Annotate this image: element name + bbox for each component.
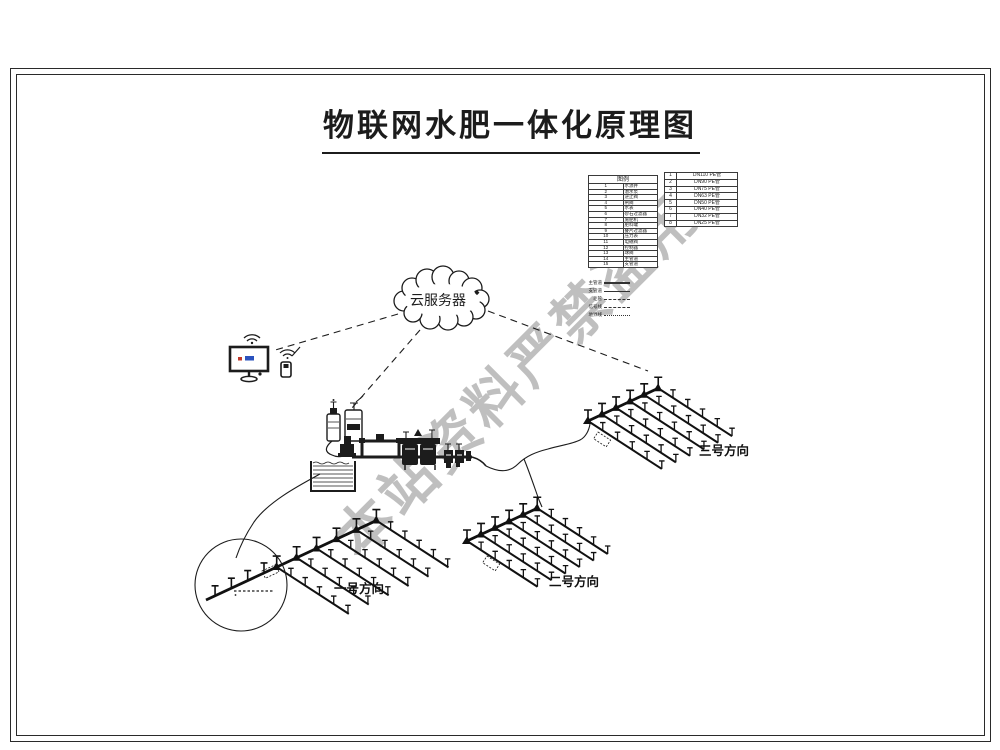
row-name: DN50 PE管 [677, 200, 738, 207]
field-label: 二号方向 [549, 574, 599, 589]
legend-header: 图例 [589, 176, 658, 184]
row-number: 7 [665, 213, 677, 220]
sand-filters [400, 429, 440, 470]
valve-meter-cluster [444, 444, 471, 468]
line-legend-item: 地界线 [586, 311, 630, 319]
page-title: 物联网水肥一体化原理图 [290, 100, 730, 145]
line-type-legend: 主管道支管道毛管信号线地界线 [586, 279, 630, 319]
valve-tag-box [483, 556, 500, 571]
screen-red-indicator [238, 357, 242, 361]
spec-row: 5DN50 PE管 [665, 200, 738, 207]
wifi-icon [280, 347, 300, 359]
pipeline-to-field-3 [486, 424, 590, 471]
line-sample [604, 307, 630, 308]
line-sample [604, 291, 630, 292]
link-cloud-to-pc [272, 314, 398, 351]
row-name: DN110 PE管 [677, 173, 738, 180]
pipeline-to-field-2 [524, 459, 542, 507]
field-2: 二号方向 [462, 497, 610, 589]
row-number: 8 [665, 220, 677, 227]
line-legend-label: 毛管 [586, 296, 602, 302]
spec-row: 6DN40 PE管 [665, 206, 738, 213]
row-number: 15 [589, 262, 624, 268]
screen-blue-indicator [245, 356, 254, 361]
monitor-dot [258, 372, 261, 375]
drawing-sheet: 本站资料严禁盗用 物联网水肥一体化原理图 图例 1水源井2潜水泵3逆止阀4闸阀5… [0, 0, 1000, 750]
sprinkler-riser [654, 377, 662, 388]
spec-row: 3DN75 PE管 [665, 186, 738, 193]
mobile-device-icon [280, 347, 300, 377]
field-3: 三号方向 [583, 377, 749, 469]
legend-row: 15支管道 [589, 262, 658, 268]
field-1: 一号方向 [206, 510, 450, 614]
spec-row: 2DN90 PE管 [665, 179, 738, 186]
spec-row: 4DN63 PE管 [665, 193, 738, 200]
line-legend-item: 信号线 [586, 303, 630, 311]
row-name: DN90 PE管 [677, 179, 738, 186]
line-legend-label: 主管道 [586, 280, 602, 286]
fertigation-equipment [311, 396, 486, 491]
cloud-label: 云服务器 [410, 293, 466, 309]
line-legend-item: 毛管 [586, 295, 630, 303]
title-underline [322, 152, 700, 154]
pipeline-to-field-1 [236, 474, 320, 558]
row-number: 5 [665, 200, 677, 207]
detail-note-dot [235, 594, 237, 596]
pipe-bridge [359, 434, 402, 457]
outlet-pipe [472, 457, 486, 466]
row-name: DN25 PE管 [677, 220, 738, 227]
row-name: 支管道 [623, 262, 658, 268]
water-pool [311, 461, 355, 491]
sprinkler-riser [372, 510, 380, 521]
cloud-server: 云服务器 [394, 266, 489, 330]
irrigation-fields: 一号方向二号方向三号方向 [206, 377, 749, 614]
row-name: DN63 PE管 [677, 193, 738, 200]
row-number: 6 [665, 206, 677, 213]
row-number: 3 [665, 186, 677, 193]
fertilizer-tank-b [345, 396, 363, 441]
field-label: 一号方向 [334, 581, 384, 596]
fertilizer-tank-a [327, 399, 340, 441]
row-name: DN40 PE管 [677, 206, 738, 213]
line-sample [604, 282, 630, 284]
row-number: 1 [665, 173, 677, 180]
row-name: DN75 PE管 [677, 186, 738, 193]
lateral-pipe [376, 521, 448, 568]
legend-table: 图例 1水源井2潜水泵3逆止阀4闸阀5水表6砂石过滤器7施肥机8肥料罐9叠片过滤… [588, 175, 658, 268]
spec-row: 1DN110 PE管 [665, 173, 738, 180]
monitor-base [241, 376, 257, 381]
row-number: 4 [665, 193, 677, 200]
line-legend-item: 主管道 [586, 279, 630, 287]
row-number: 2 [665, 179, 677, 186]
lateral-pipe [356, 530, 428, 577]
line-sample [604, 315, 630, 316]
line-legend-label: 支管道 [586, 288, 602, 294]
field-label: 三号方向 [699, 443, 749, 458]
line-legend-label: 地界线 [586, 312, 602, 318]
pc-monitor-icon [230, 335, 268, 382]
spec-row: 8DN25 PE管 [665, 220, 738, 227]
link-cloud-to-field [488, 311, 648, 371]
spec-row: 7DN32 PE管 [665, 213, 738, 220]
line-legend-label: 信号线 [586, 304, 602, 310]
lateral-pipe [337, 539, 409, 586]
phone-screen [284, 364, 289, 368]
wifi-icon [244, 335, 260, 344]
line-legend-item: 支管道 [586, 287, 630, 295]
pipe-spec-table: 1DN110 PE管2DN90 PE管3DN75 PE管4DN63 PE管5DN… [664, 172, 738, 227]
line-sample [604, 299, 630, 300]
row-name: DN32 PE管 [677, 213, 738, 220]
